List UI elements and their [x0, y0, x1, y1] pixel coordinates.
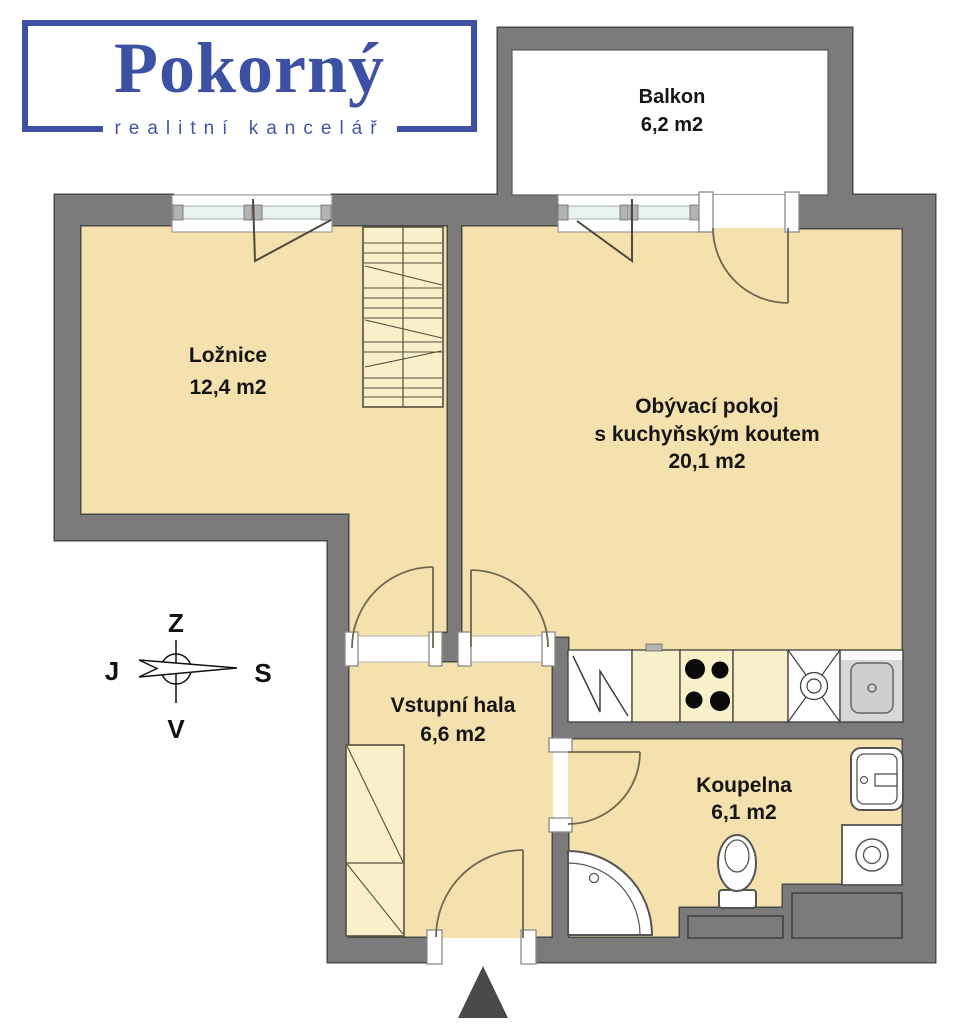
door-jamb	[427, 930, 442, 964]
stove	[680, 650, 733, 722]
living-room-label-line2: s kuchyňským koutem	[594, 423, 819, 446]
kitchen-counter	[568, 644, 903, 722]
compass-rose: Z J S V	[105, 608, 272, 744]
hall-label: Vstupní hala	[391, 694, 516, 717]
living-room-label-line1: Obývací pokoj	[635, 395, 779, 418]
kitchen-cabinet	[632, 650, 680, 722]
compass-label-east: V	[167, 714, 185, 744]
bedroom-area: 12,4 m2	[189, 376, 266, 399]
door-jamb	[458, 632, 471, 666]
burner	[710, 691, 730, 711]
compass-label-west: Z	[168, 608, 184, 638]
window-mullion	[254, 205, 262, 220]
bedroom-wardrobe	[363, 227, 443, 407]
window-mullion	[558, 205, 568, 220]
cabinet-handle	[646, 644, 662, 651]
hall-wardrobe	[346, 745, 404, 936]
door-jamb	[542, 632, 555, 666]
bathroom-label: Koupelna	[696, 774, 792, 797]
window-mullion	[173, 205, 183, 220]
kitchen-sink	[840, 650, 903, 722]
floor-plan-page: Pokorný realitní kancelář	[0, 0, 961, 1024]
door-jamb	[429, 632, 442, 666]
door-jamb	[549, 738, 572, 752]
hall-area: 6,6 m2	[420, 723, 485, 746]
balcony-area: 6,2 m2	[641, 114, 703, 136]
bathroom-area: 6,1 m2	[711, 801, 776, 824]
window-mullion	[244, 205, 252, 220]
room-floors	[80, 225, 903, 938]
washbasin	[851, 748, 903, 810]
compass-label-south: J	[105, 656, 119, 686]
door-jamb	[699, 192, 713, 232]
kitchen-cabinet	[733, 650, 788, 722]
burner	[686, 692, 703, 709]
living-room-area: 20,1 m2	[668, 450, 745, 473]
door-jamb	[345, 632, 358, 666]
balcony-door-opening	[713, 195, 786, 228]
burner	[685, 659, 705, 679]
floor-plan-drawing: Balkon 6,2 m2 Ložnice 12,4 m2 Obývací po…	[0, 0, 961, 1024]
compass-label-north: S	[254, 658, 271, 688]
bathroom-door-opening	[553, 750, 568, 820]
door-jamb	[785, 192, 799, 232]
bedroom-label: Ložnice	[189, 344, 267, 367]
washing-machine	[842, 825, 902, 885]
window-mullion	[620, 205, 628, 220]
compass-needle	[139, 660, 237, 677]
faucet	[875, 774, 897, 786]
entrance-arrow	[458, 966, 508, 1018]
toilet	[718, 835, 756, 908]
door-jamb	[549, 818, 572, 832]
window-mullion	[321, 205, 331, 220]
balcony-label: Balkon	[639, 86, 706, 108]
dishwasher	[788, 650, 840, 722]
burner	[712, 662, 729, 679]
